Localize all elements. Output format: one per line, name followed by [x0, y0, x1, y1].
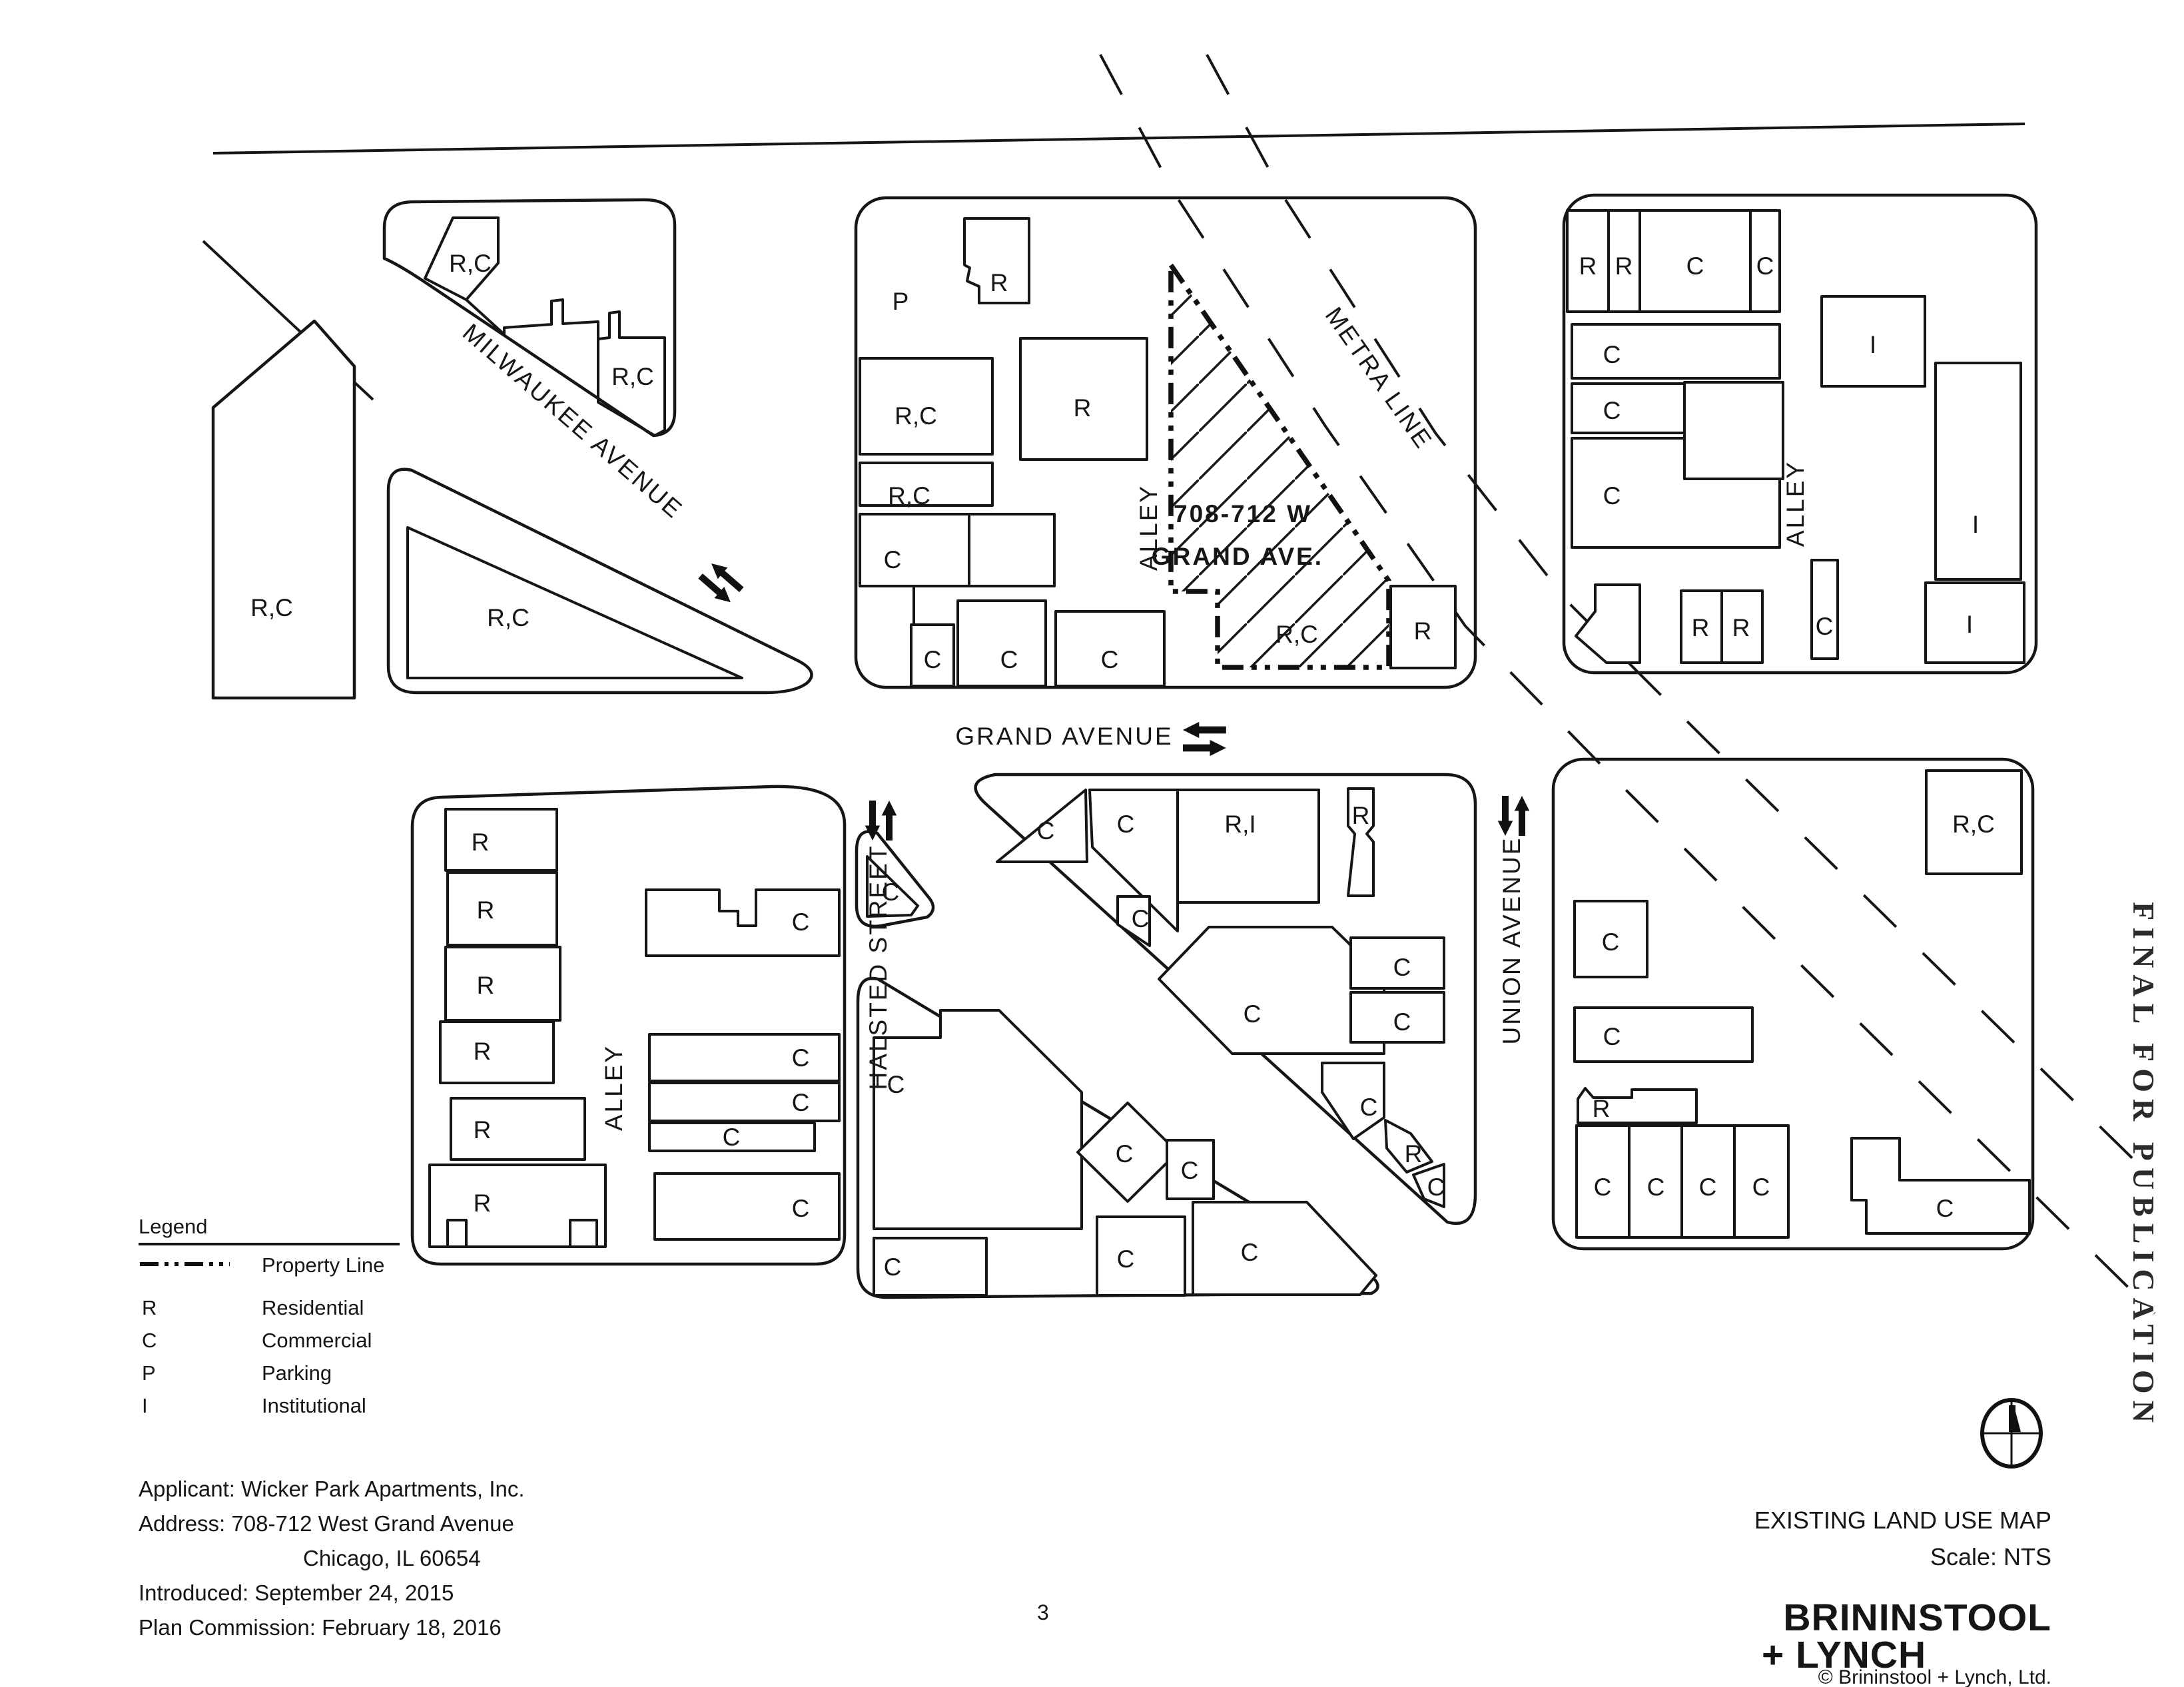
legend-symbol: P — [142, 1361, 156, 1385]
two-way-arrow-icon — [865, 801, 897, 841]
street-label: ALLEY — [600, 1044, 627, 1131]
parcel-label: C — [1244, 1000, 1262, 1028]
parcel-label: C — [1602, 928, 1620, 956]
parcel-label: R — [1414, 617, 1432, 645]
map-scale: Scale: NTS — [1930, 1543, 2051, 1570]
page-top-border — [213, 124, 2025, 153]
parcel-label: R — [1732, 614, 1750, 641]
parcel-label: C — [1393, 954, 1411, 981]
parcel-label: C — [1393, 1008, 1411, 1036]
applicant-info: Applicant: Wicker Park Apartments, Inc. … — [139, 1477, 525, 1640]
parcel-label: C — [1594, 1174, 1612, 1201]
two-way-arrow-icon — [1498, 796, 1530, 836]
parcel — [1178, 790, 1319, 902]
parcel — [649, 1034, 839, 1081]
parcel — [860, 514, 969, 586]
parcel-label: R,C — [449, 250, 492, 277]
legend-label: Residential — [262, 1296, 364, 1319]
parcel-label: C — [792, 1089, 810, 1116]
parcel-label: C — [1101, 646, 1119, 673]
parcel-label: C — [792, 1195, 810, 1222]
map-canvas: R,CR,CR,CR,CPRR,CRR,CCCCCR,CRRRCCCCCIIIR… — [0, 0, 2184, 1687]
parcel-label: C — [1181, 1157, 1199, 1184]
street-label: HALSTED STREET — [865, 844, 892, 1090]
parcel-label: R,C — [250, 594, 293, 621]
parcel-west-pentagon — [213, 321, 354, 698]
parcel-label: I — [1870, 331, 1876, 358]
parcel-label: C — [1000, 646, 1018, 673]
parcel-label: C — [1117, 811, 1135, 838]
street-label: UNION AVENUE — [1498, 837, 1525, 1045]
parcel — [1193, 1202, 1376, 1295]
parcel-label: R,C — [888, 482, 930, 509]
parcel-label: C — [1699, 1174, 1717, 1201]
parcel-label: R — [1615, 252, 1633, 280]
parcel — [1812, 560, 1838, 659]
parcel-label: R — [1579, 252, 1597, 280]
north-arrow-icon — [1982, 1400, 2041, 1467]
parcel-label: I — [1972, 511, 1979, 538]
parcel — [446, 947, 560, 1020]
firm-name-line1: BRININSTOOL — [1783, 1596, 2051, 1639]
parcel-label: C — [924, 646, 942, 673]
parcel-label: R — [1405, 1140, 1423, 1168]
parcel-label: C — [1647, 1174, 1665, 1201]
parcel-label: R,I — [1224, 811, 1256, 838]
parcel-label: R — [477, 972, 495, 999]
info-line: Chicago, IL 60654 — [303, 1546, 481, 1570]
parcel-notch — [448, 1220, 466, 1247]
legend-label: Commercial — [262, 1329, 372, 1352]
parcel-label: C — [1241, 1239, 1259, 1266]
legend-label: Parking — [262, 1361, 332, 1385]
legend-symbol: I — [142, 1394, 148, 1417]
parcel — [446, 809, 557, 870]
parcel-label: R,C — [895, 402, 937, 430]
parcel-label: R — [477, 896, 495, 924]
two-way-arrow-icon — [1183, 722, 1226, 756]
parcel — [440, 1022, 553, 1083]
parcel-label: R — [474, 1116, 492, 1144]
page-number: 3 — [1037, 1600, 1049, 1624]
legend-symbol: R — [142, 1296, 157, 1319]
parcel — [451, 1098, 585, 1160]
parcel-label: R — [474, 1189, 492, 1217]
legend-property-line-label: Property Line — [262, 1253, 384, 1277]
parcel-label: R,C — [487, 604, 530, 631]
parcel — [969, 514, 1054, 586]
parcel-label: C — [1936, 1195, 1954, 1222]
info-line: Applicant: Wicker Park Apartments, Inc. — [139, 1477, 525, 1501]
legend: Legend Property Line R Residential C Com… — [139, 1215, 400, 1417]
info-line: Introduced: September 24, 2015 — [139, 1580, 454, 1605]
parcel-label: R,C — [1952, 811, 1995, 838]
parcel — [874, 1010, 1082, 1229]
parcel-label: P — [893, 288, 909, 315]
parcel-label: C — [1603, 482, 1621, 509]
parcel-label: C — [884, 1253, 902, 1281]
street-label: 708-712 W — [1174, 500, 1312, 527]
parcel — [649, 1083, 839, 1121]
parcel-label: C — [723, 1124, 741, 1151]
parcel — [1097, 1217, 1185, 1295]
parcel-label: C — [1603, 1023, 1621, 1050]
map-title: EXISTING LAND USE MAP — [1754, 1507, 2051, 1534]
parcel-label: C — [1686, 252, 1704, 280]
legend-title: Legend — [139, 1215, 207, 1238]
parcel-label: R — [1593, 1095, 1611, 1122]
street-label: ALLEY — [1782, 460, 1809, 547]
info-line: Address: 708-712 West Grand Avenue — [139, 1511, 514, 1536]
legend-symbol: C — [142, 1329, 157, 1352]
parcel-label: C — [884, 546, 902, 573]
parcel-label: C — [1603, 397, 1621, 424]
final-for-publication-stamp: FINAL FOR PUBLICATION — [2127, 902, 2161, 1429]
parcel-label: C — [1427, 1174, 1445, 1201]
two-way-arrow-icon — [695, 558, 746, 608]
parcel-label: R — [474, 1038, 492, 1065]
parcel-label: C — [1603, 341, 1621, 368]
block-milwaukee-south — [388, 470, 812, 693]
parcel — [1936, 363, 2021, 579]
parcel — [1926, 583, 2024, 663]
parcel-label: R — [990, 269, 1008, 296]
parcel-label: R,C — [611, 363, 654, 390]
copyright-line: © Brininstool + Lynch, Ltd. — [1818, 1666, 2051, 1687]
parcel-label: C — [1756, 252, 1774, 280]
parcel-label: R — [1352, 802, 1370, 829]
land-use-map-page: R,CR,CR,CR,CPRR,CRR,CCCCCR,CRRRCCCCCIIIR… — [0, 0, 2184, 1687]
parcel-label: C — [792, 1044, 810, 1072]
street-label: GRAND AVENUE — [955, 723, 1173, 750]
parcel-label: R,C — [1275, 621, 1318, 648]
parcel-notch — [570, 1220, 597, 1247]
parcel — [448, 872, 557, 945]
southcenter-block-parcels — [867, 789, 1444, 1295]
parcel-label: C — [1360, 1094, 1378, 1121]
info-line: Plan Commission: February 18, 2016 — [139, 1615, 502, 1640]
parcel-label: C — [1816, 613, 1834, 640]
parcel-label: R — [472, 829, 490, 856]
parcel-label: I — [1966, 611, 1973, 638]
parcel-label: R — [1692, 614, 1710, 641]
parcel-label: C — [1132, 905, 1150, 932]
parcel-label: C — [1117, 1245, 1135, 1273]
parcel — [1575, 1008, 1752, 1062]
parcel-label: C — [1116, 1140, 1134, 1168]
parcel-label: C — [1037, 817, 1055, 844]
parcel-label: C — [792, 908, 810, 936]
legend-label: Institutional — [262, 1394, 366, 1417]
parcel-label: C — [1752, 1174, 1770, 1201]
parcel — [655, 1174, 839, 1239]
title-block: EXISTING LAND USE MAP Scale: NTS BRININS… — [1754, 1400, 2051, 1687]
parcel — [1684, 382, 1783, 479]
street-label: GRAND AVE. — [1152, 543, 1323, 570]
parcel-label: R — [1074, 394, 1092, 422]
